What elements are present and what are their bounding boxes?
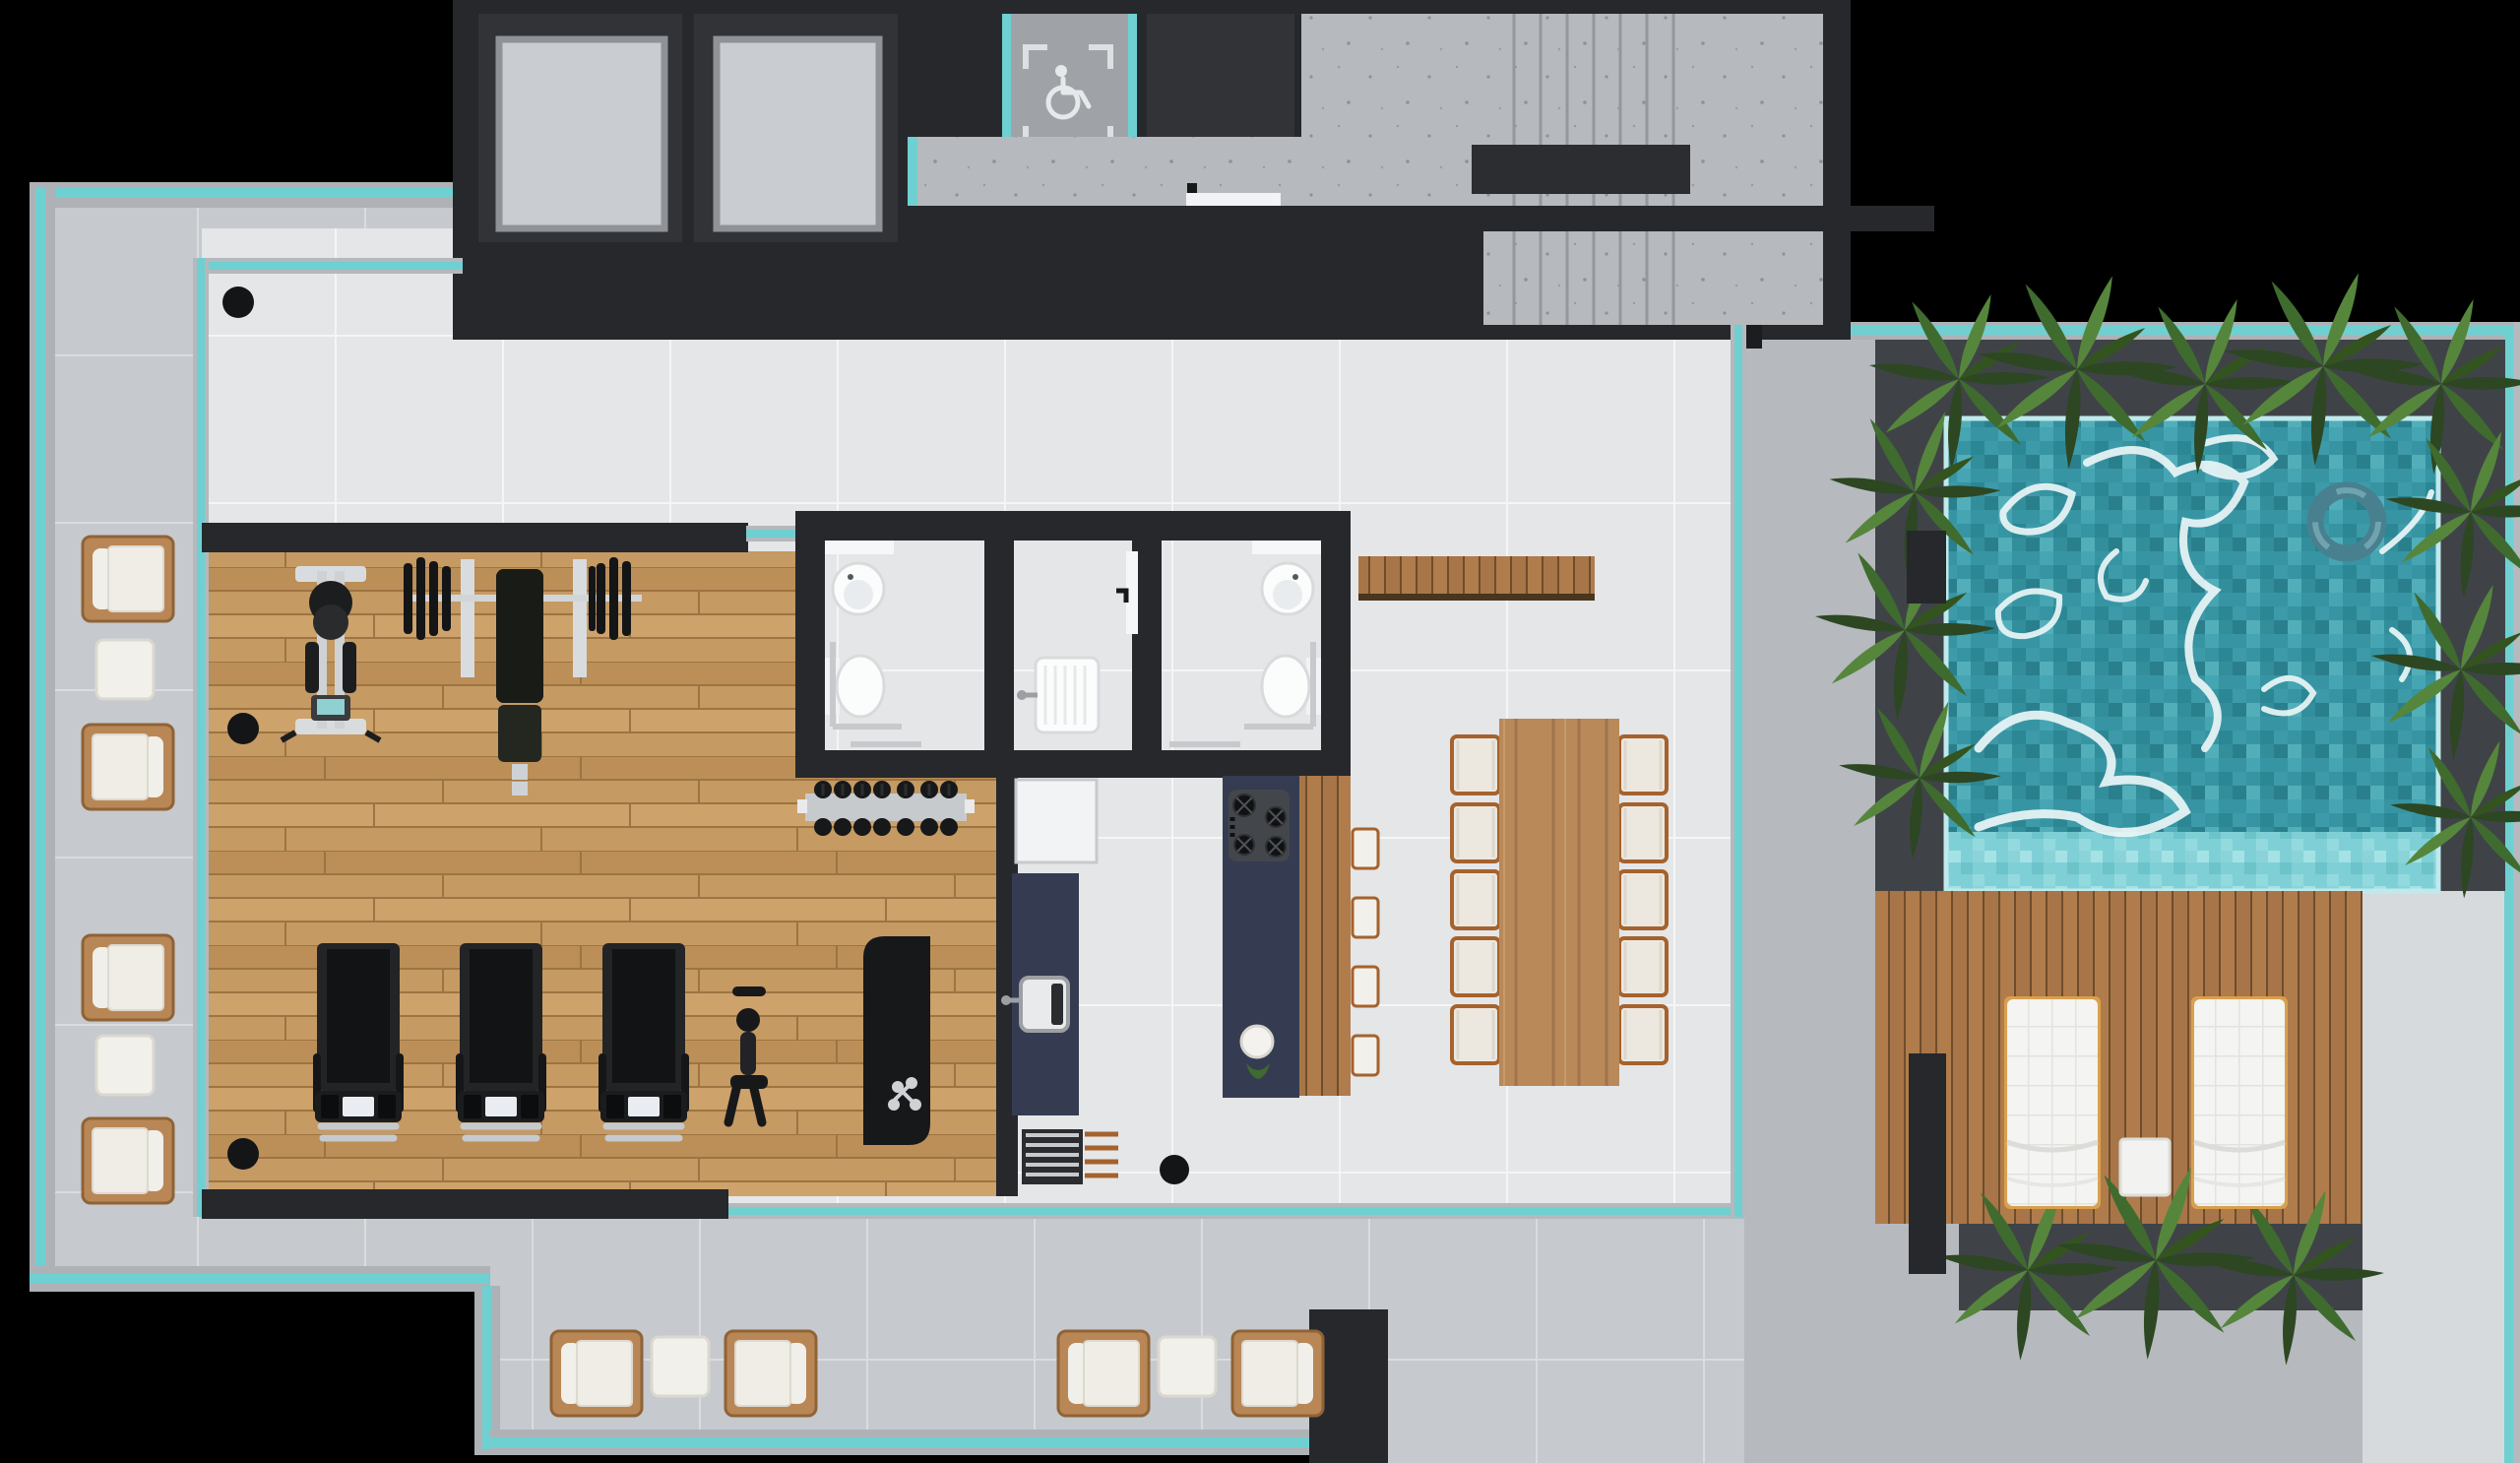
sun-lounger <box>2004 996 2101 1209</box>
armchair <box>83 935 173 1020</box>
deck-side-table <box>2120 1139 2170 1195</box>
round-column <box>227 713 259 744</box>
staircase <box>1472 14 1823 349</box>
armchair <box>83 725 173 809</box>
pool <box>1946 418 2438 891</box>
armchair <box>725 1331 816 1416</box>
treadmill <box>456 943 546 1138</box>
gym-bottom-wall <box>202 1189 728 1219</box>
breakfast-bar <box>1299 776 1351 1096</box>
dining-table <box>1499 719 1619 1086</box>
dining-chairs-left <box>1452 736 1499 1063</box>
toilet <box>837 656 884 717</box>
sun-lounger <box>2191 996 2288 1209</box>
round-column <box>1160 1155 1189 1184</box>
kitchen-island <box>1223 776 1351 1098</box>
wall-stub <box>1909 1053 1946 1274</box>
armchair <box>83 537 173 621</box>
armchair <box>1232 1331 1323 1416</box>
elevator-car <box>717 39 879 228</box>
ottoman <box>96 640 154 699</box>
dumbbell-rack <box>797 781 975 836</box>
round-column <box>222 286 254 318</box>
corridor-door <box>1186 193 1281 206</box>
ottoman <box>96 1036 154 1095</box>
ottoman <box>1159 1337 1216 1396</box>
wall-stub <box>1907 531 1946 604</box>
refrigerator <box>1016 780 1097 862</box>
elevator-car <box>499 39 664 228</box>
gym-top-wall <box>202 523 748 552</box>
corridor-glass-door <box>908 137 917 206</box>
armchair <box>83 1118 173 1203</box>
stair-void <box>1472 145 1690 194</box>
dining-chairs-right <box>1619 736 1667 1063</box>
treadmill <box>313 943 404 1138</box>
pool-shallow-ledge <box>1946 832 2438 891</box>
exercise-mat <box>863 936 930 1145</box>
ottoman <box>652 1337 709 1396</box>
salad-bowl <box>1241 1026 1273 1057</box>
round-column <box>227 1138 259 1170</box>
treadmill <box>598 943 689 1138</box>
bathrooms <box>795 511 1351 778</box>
floor-plan-render <box>0 0 2520 1463</box>
armchair <box>551 1331 642 1416</box>
armchair <box>1058 1331 1149 1416</box>
building-core <box>453 0 1934 349</box>
toilet <box>1262 656 1309 717</box>
door-handle <box>1187 183 1197 193</box>
